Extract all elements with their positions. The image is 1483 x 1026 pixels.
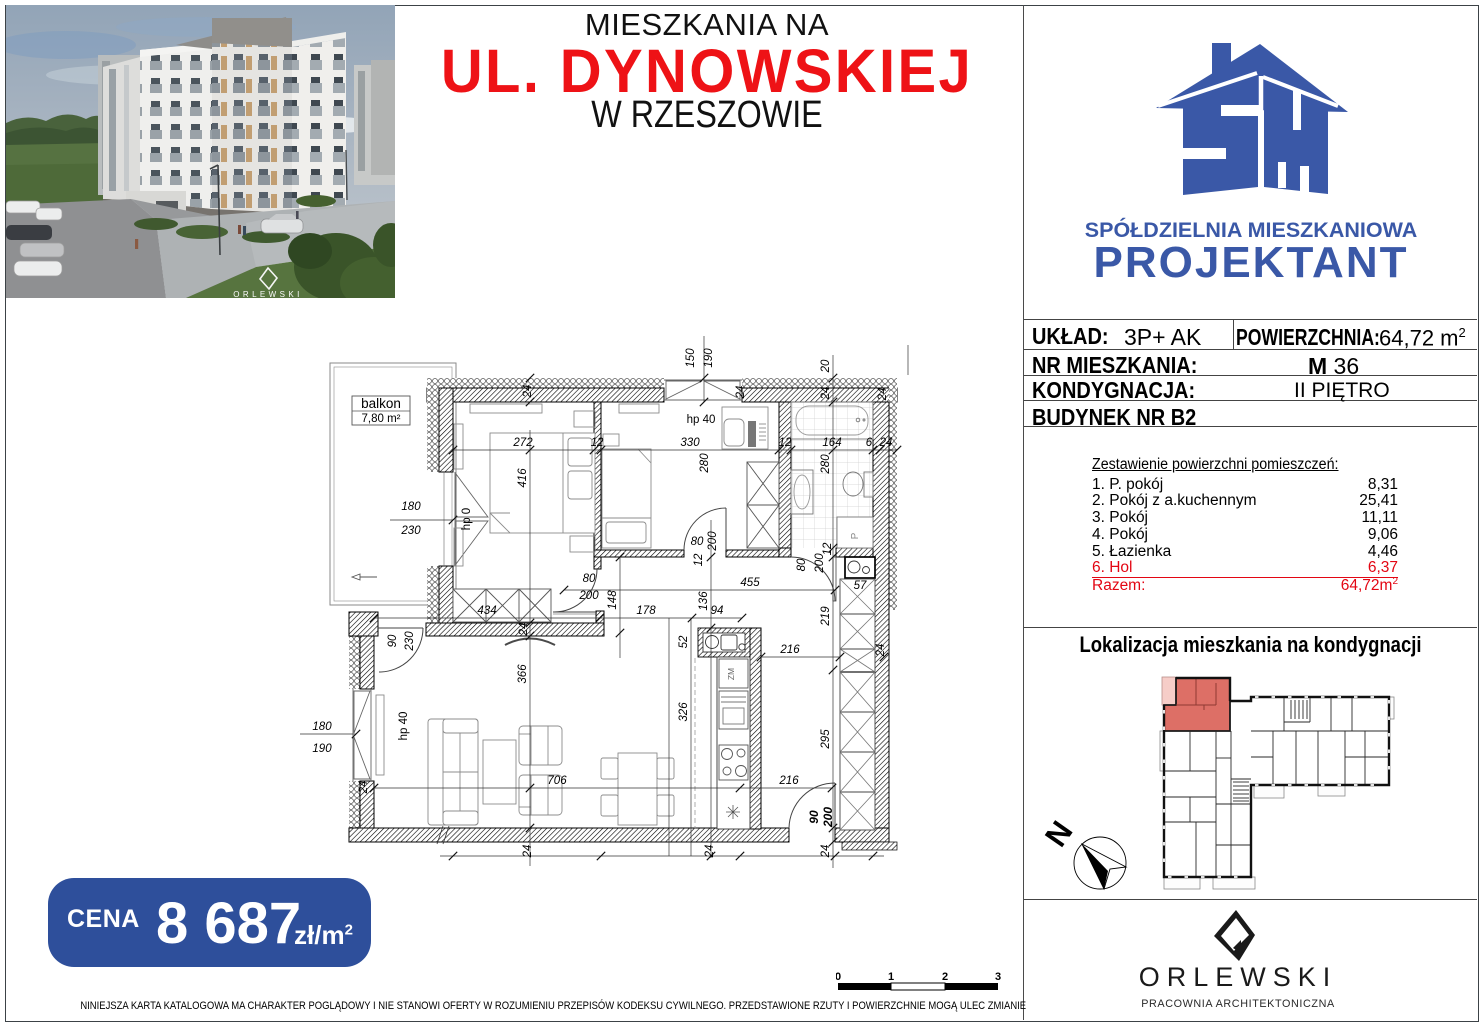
svg-text:90: 90: [387, 634, 399, 647]
svg-text:24: 24: [877, 388, 889, 402]
svg-text:272: 272: [512, 437, 533, 449]
svg-text:230: 230: [400, 525, 421, 537]
svg-text:24: 24: [704, 845, 716, 859]
svg-text:7,80 m²: 7,80 m²: [362, 413, 401, 425]
svg-text:ZM: ZM: [726, 668, 736, 680]
svg-text:57: 57: [854, 580, 867, 592]
svg-text:416: 416: [517, 468, 529, 488]
svg-text:P: P: [850, 532, 861, 539]
svg-text:94: 94: [711, 605, 724, 617]
svg-text:20: 20: [820, 359, 832, 373]
svg-text:hp 0: hp 0: [461, 508, 473, 530]
svg-text:280: 280: [699, 453, 711, 474]
svg-text:80: 80: [796, 558, 808, 571]
svg-text:148: 148: [607, 590, 619, 610]
svg-text:0: 0: [836, 971, 841, 983]
svg-text:216: 216: [778, 775, 799, 787]
svg-text:326: 326: [678, 702, 690, 722]
svg-text:PRACOWNIA ARCHITEKTONICZNA: PRACOWNIA ARCHITEKTONICZNA: [1141, 998, 1335, 1010]
svg-text:hp 40: hp 40: [398, 712, 410, 741]
svg-text:80: 80: [583, 573, 596, 585]
svg-text:24: 24: [522, 385, 534, 399]
svg-text:180: 180: [401, 501, 421, 513]
svg-text:219: 219: [820, 606, 832, 627]
svg-text:balkon: balkon: [361, 396, 401, 411]
svg-text:12: 12: [693, 553, 705, 566]
svg-text:280: 280: [820, 454, 832, 475]
svg-text:190: 190: [703, 348, 715, 368]
svg-text:230: 230: [404, 631, 416, 652]
svg-text:366: 366: [517, 664, 529, 684]
svg-text:24: 24: [820, 387, 832, 401]
svg-text:24: 24: [735, 386, 747, 400]
svg-text:24: 24: [522, 845, 534, 859]
svg-text:80: 80: [691, 536, 704, 548]
svg-text:136: 136: [698, 591, 710, 611]
svg-text:24: 24: [875, 644, 887, 658]
svg-text:434: 434: [477, 605, 496, 617]
svg-text:200: 200: [821, 807, 835, 828]
svg-text:706: 706: [547, 775, 567, 787]
svg-text:200: 200: [707, 531, 719, 552]
svg-text:12: 12: [591, 437, 604, 449]
svg-text:90: 90: [807, 810, 821, 824]
svg-text:24: 24: [518, 623, 530, 637]
svg-text:24: 24: [879, 437, 893, 449]
svg-text:190: 190: [312, 743, 332, 755]
svg-text:3: 3: [995, 971, 1001, 983]
svg-text:PROJEKTANT: PROJEKTANT: [1094, 238, 1409, 287]
svg-text:1: 1: [888, 971, 894, 983]
svg-text:455: 455: [740, 577, 760, 589]
svg-text:12: 12: [779, 437, 792, 449]
svg-text:216: 216: [779, 644, 800, 656]
svg-text:N: N: [1038, 815, 1080, 853]
svg-text:12: 12: [822, 542, 834, 555]
svg-text:200: 200: [578, 590, 599, 602]
svg-text:295: 295: [820, 729, 832, 750]
svg-text:178: 178: [636, 605, 656, 617]
svg-text:ORLEWSKI: ORLEWSKI: [1139, 962, 1338, 992]
svg-text:24: 24: [820, 845, 832, 859]
svg-text:180: 180: [312, 721, 332, 733]
svg-text:52: 52: [678, 635, 690, 648]
svg-text:24: 24: [358, 781, 370, 795]
svg-text:2: 2: [942, 971, 948, 983]
svg-text:330: 330: [680, 437, 700, 449]
svg-text:6: 6: [866, 437, 873, 449]
svg-text:164: 164: [822, 437, 841, 449]
svg-text:hp 40: hp 40: [687, 414, 716, 426]
svg-text:150: 150: [685, 348, 697, 368]
svg-text:ORLEWSKI: ORLEWSKI: [233, 290, 302, 298]
